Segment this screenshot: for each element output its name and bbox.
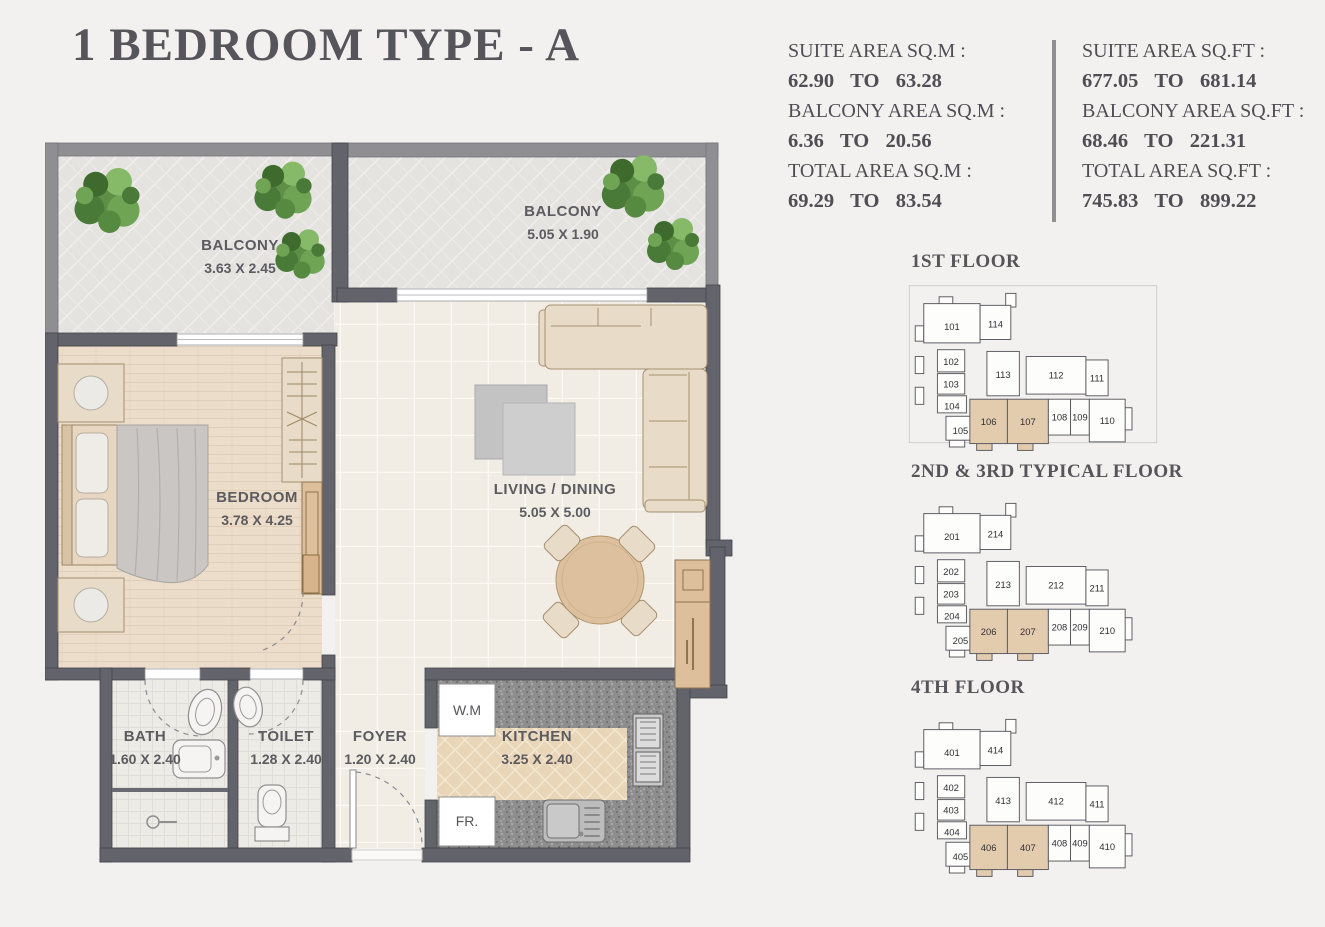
unit-number: 206: [981, 627, 997, 637]
room-label: FOYER: [353, 728, 407, 745]
bedroom-top-wall-left: [45, 333, 177, 346]
suite-sqft-value: 677.05 TO 681.14: [1082, 66, 1304, 96]
bedroom-bottom-wall-a: [45, 668, 145, 680]
entrance-door: [350, 770, 356, 848]
unit-number: 213: [995, 580, 1011, 590]
living-top-wall-left: [337, 288, 397, 302]
pillow: [76, 433, 108, 493]
balcony-sqm-value: 6.36 TO 20.56: [788, 126, 1026, 156]
area-sqft-column: SUITE AREA SQ.FT : 677.05 TO 681.14 BALC…: [1082, 36, 1304, 222]
foyer-kitchen-wall-top: [425, 680, 437, 728]
balcony-sqft-value: 68.46 TO 221.31: [1082, 126, 1304, 156]
unit-number: 201: [944, 532, 960, 542]
foyer-kitchen-wall-bottom: [425, 800, 437, 848]
keyplan-drawing: 201 202 203 204 205 206 207 208 209 210 …: [905, 488, 1161, 663]
unit-number: 205: [953, 636, 969, 646]
unit-number: 211: [1090, 583, 1105, 593]
floorplan-sheet: 1 BEDROOM TYPE - A SUITE AREA SQ.M : 62.…: [0, 0, 1325, 927]
keyplan-2nd-3rd-floor: 2ND & 3RD TYPICAL FLOOR 201 202: [905, 461, 1205, 668]
kitchen-right-wall: [677, 685, 690, 851]
pillow: [76, 499, 108, 557]
room-label: TOILET: [258, 728, 314, 745]
total-sqm-value: 69.29 TO 83.54: [788, 186, 1026, 216]
area-divider: [1052, 40, 1056, 222]
unit-number: 401: [944, 748, 960, 758]
room-label: BEDROOM: [216, 489, 298, 506]
balcony-divider-wall: [332, 143, 348, 302]
keyplan-title: 1ST FLOOR: [911, 251, 1205, 273]
bottom-wall-left: [100, 848, 352, 862]
total-sqft-label: TOTAL AREA SQ.FT :: [1082, 156, 1304, 186]
toilet-door-opening: [250, 669, 303, 679]
room-label: BATH: [124, 728, 167, 745]
suite-sqm-value: 62.90 TO 63.28: [788, 66, 1026, 96]
keyplan-drawing: 101 102 103 104 105 106 107 108 109 110 …: [905, 278, 1161, 453]
room-dims: 3.63 X 2.45: [204, 260, 276, 276]
unit-number: 410: [1099, 842, 1115, 852]
faucet-icon: [215, 756, 220, 761]
wc-tank: [255, 827, 289, 841]
unit-number: 212: [1048, 581, 1064, 591]
keyplan-4th-floor: 4TH FLOOR 401 402 403: [905, 677, 1205, 884]
unit-number: 403: [943, 805, 959, 815]
bed-blanket: [117, 425, 208, 583]
room-dims: 1.60 X 2.40: [109, 751, 181, 767]
floor-plan-drawing: BALCONY 3.63 X 2.45 BALCONY 5.05 X 1.90 …: [45, 140, 745, 870]
unit-number: 103: [943, 379, 959, 389]
unit-number: 102: [943, 357, 959, 367]
area-sqm-column: SUITE AREA SQ.M : 62.90 TO 63.28 BALCONY…: [788, 36, 1026, 222]
balcony-sqm-label: BALCONY AREA SQ.M :: [788, 96, 1026, 126]
unit-number: 404: [944, 827, 960, 837]
unit-number: 411: [1090, 799, 1105, 809]
sofa-armrest: [645, 500, 705, 512]
unit-number: 209: [1072, 623, 1088, 633]
unit-number: 204: [944, 611, 960, 621]
building-outline: [915, 293, 1132, 450]
sink-basin: [547, 804, 579, 838]
bedroom-door: [303, 555, 319, 593]
unit-number: 112: [1049, 371, 1064, 381]
total-sqft-value: 745.83 TO 899.22: [1082, 186, 1304, 216]
balcony-sqft-label: BALCONY AREA SQ.FT :: [1082, 96, 1304, 126]
sink-drain-icon: [579, 832, 584, 837]
bedroom-bottom-wall-b: [200, 668, 250, 680]
unit-number: 107: [1020, 417, 1036, 427]
unit-number: 110: [1100, 416, 1115, 426]
washing-machine-label: W.M: [453, 702, 481, 718]
balcony-left-top-wall: [45, 143, 337, 156]
bed-headboard: [62, 425, 72, 565]
kitchen-top-wall: [425, 668, 690, 680]
cabinet-back-wall: [710, 547, 725, 692]
room-dims: 5.05 X 5.00: [519, 504, 591, 520]
unit-number: 406: [981, 843, 997, 853]
unit-number: 214: [988, 530, 1004, 540]
total-sqm-label: TOTAL AREA SQ.M :: [788, 156, 1026, 186]
room-dims: 3.78 X 4.25: [221, 512, 293, 528]
room-label: BALCONY: [201, 237, 279, 254]
room-label: LIVING / DINING: [494, 481, 617, 498]
keyplan-1st-floor: 1ST FLOOR 101 102: [905, 251, 1205, 458]
room-dims: 5.05 X 1.90: [527, 226, 599, 242]
keyplan-drawing: 401 402 403 404 405 406 407 408 409 410 …: [905, 704, 1161, 879]
unit-number: 203: [943, 589, 959, 599]
unit-number: 207: [1020, 627, 1036, 637]
area-summary: SUITE AREA SQ.M : 62.90 TO 63.28 BALCONY…: [788, 36, 1304, 222]
unit-number: 104: [944, 401, 960, 411]
building-outline: [915, 719, 1132, 876]
unit-number: 210: [1099, 626, 1115, 636]
living-right-wall: [706, 285, 720, 547]
suite-sqft-label: SUITE AREA SQ.FT :: [1082, 36, 1304, 66]
lamp-icon: [74, 588, 108, 622]
sofa-horizontal: [545, 305, 707, 369]
unit-number: 412: [1048, 797, 1064, 807]
fridge-label: FR.: [456, 813, 479, 829]
unit-number: 106: [981, 417, 997, 427]
bath-door-opening: [145, 669, 200, 679]
unit-number: 414: [988, 746, 1004, 756]
building-outline: [915, 503, 1132, 660]
unit-number: 101: [944, 322, 960, 332]
lamp-icon: [74, 376, 108, 410]
wc-bowl: [258, 785, 286, 827]
bedroom-top-wall-right: [303, 333, 337, 346]
sofa-vertical: [643, 369, 707, 509]
suite-sqm-label: SUITE AREA SQ.M :: [788, 36, 1026, 66]
unit-number: 208: [1052, 623, 1068, 633]
room-dims: 1.28 X 2.40: [250, 751, 322, 767]
unit-number: 405: [953, 852, 969, 862]
keyplan-title: 4TH FLOOR: [911, 677, 1205, 699]
unit-number: 407: [1020, 843, 1036, 853]
unit-number: 413: [995, 796, 1011, 806]
unit-number: 402: [943, 783, 959, 793]
unit-number: 113: [996, 370, 1011, 380]
main-floor-plan: BALCONY 3.63 X 2.45 BALCONY 5.05 X 1.90 …: [45, 140, 745, 875]
bottom-wall-right: [422, 848, 690, 862]
bedroom-bottom-wall-c: [303, 668, 335, 680]
unit-number: 109: [1072, 413, 1088, 423]
toilet-foyer-wall: [322, 655, 335, 862]
room-label: BALCONY: [524, 203, 602, 220]
balcony-top-top-wall: [337, 143, 718, 157]
entrance-threshold: [352, 850, 422, 860]
bedroom-left-wall: [45, 333, 58, 680]
unit-number: 108: [1052, 413, 1068, 423]
balcony-top-right-wall: [706, 143, 718, 288]
unit-number: 202: [943, 567, 959, 577]
room-dims: 3.25 X 2.40: [501, 751, 573, 767]
room-dims: 1.20 X 2.40: [344, 751, 416, 767]
unit-number: 105: [953, 426, 969, 436]
unit-number: 114: [988, 320, 1003, 330]
balcony-left-side-wall: [45, 143, 58, 335]
page-title: 1 BEDROOM TYPE - A: [72, 18, 580, 72]
room-label: KITCHEN: [502, 728, 572, 745]
unit-number: 408: [1052, 839, 1068, 849]
tv-rug-2: [503, 403, 575, 475]
unit-number: 409: [1072, 839, 1088, 849]
bedroom-living-wall: [322, 345, 335, 595]
unit-number: 111: [1090, 373, 1104, 383]
keyplan-title: 2ND & 3RD TYPICAL FLOOR: [911, 461, 1205, 483]
